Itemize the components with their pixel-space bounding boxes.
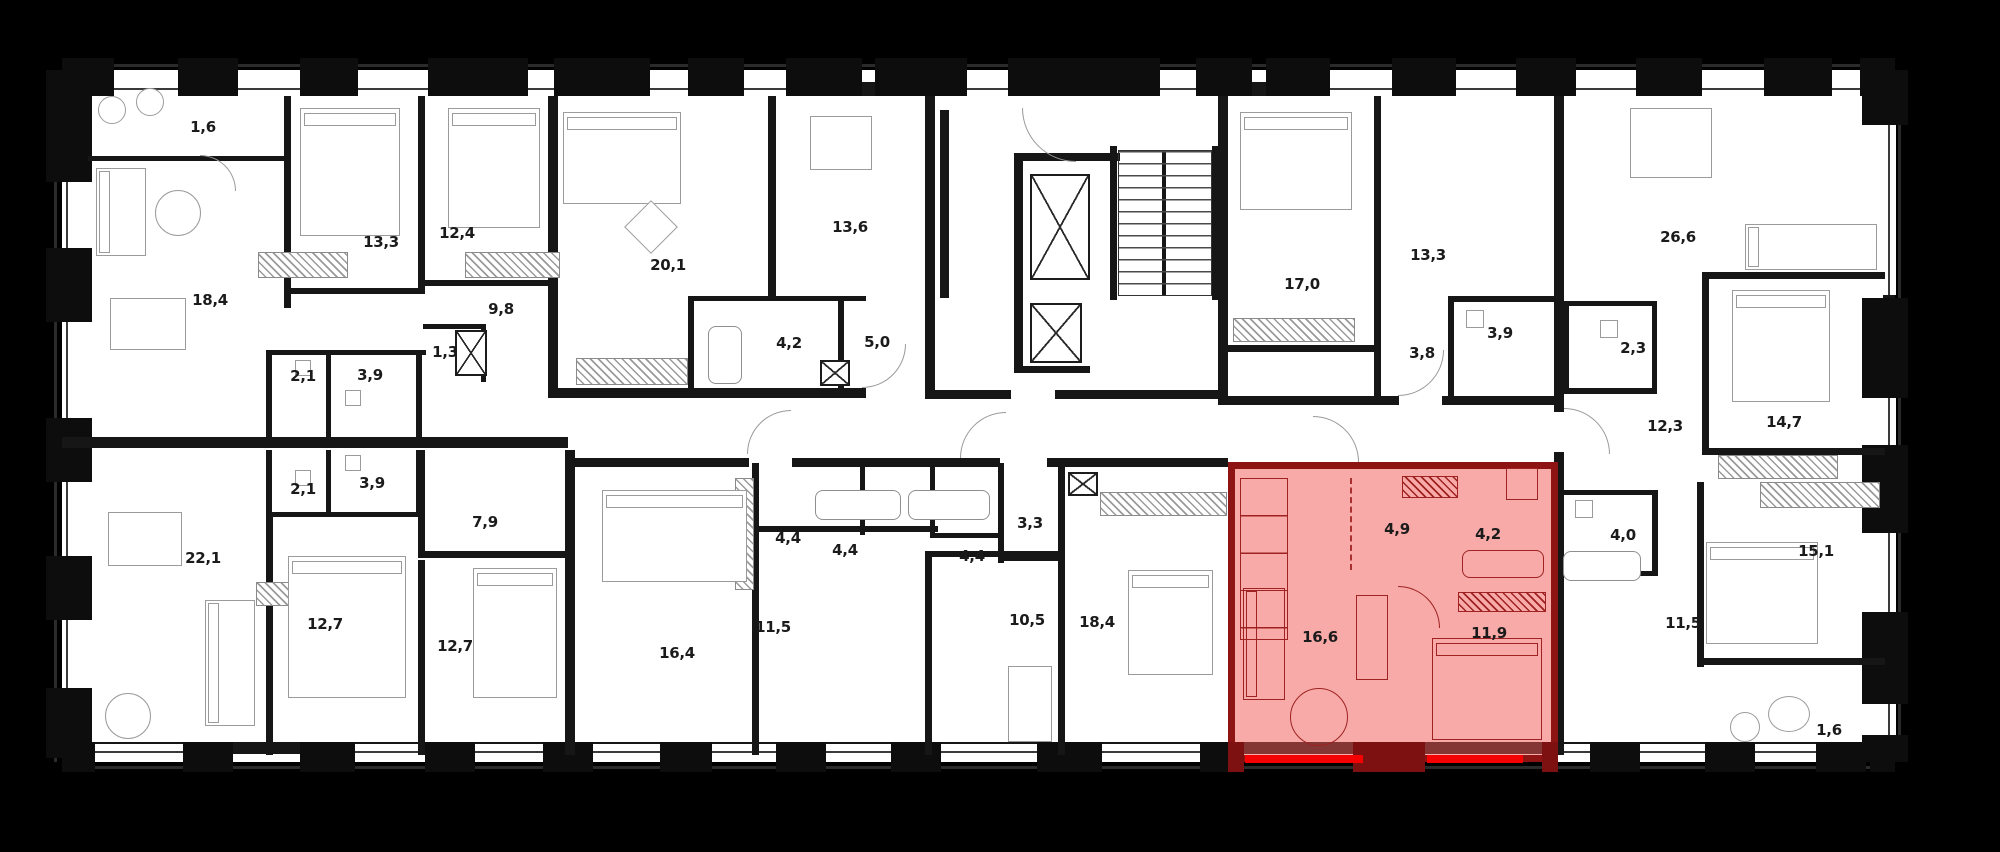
window-line bbox=[475, 751, 543, 753]
wardrobe bbox=[1458, 592, 1546, 612]
bed bbox=[602, 490, 747, 582]
window-line bbox=[967, 88, 1008, 90]
wall bbox=[548, 388, 866, 398]
window-line bbox=[1832, 88, 1860, 90]
room-area-label: 13,3 bbox=[363, 233, 399, 251]
wall bbox=[266, 350, 426, 355]
room-area-label: 5,0 bbox=[864, 333, 890, 351]
room-area-label: 7,9 bbox=[472, 513, 498, 531]
table bbox=[1290, 688, 1348, 746]
room-area-label: 11,5 bbox=[1665, 614, 1701, 632]
bed bbox=[1732, 290, 1830, 402]
wall bbox=[1218, 96, 1228, 405]
bed bbox=[288, 556, 406, 698]
room-area-label: 15,1 bbox=[1798, 542, 1834, 560]
window-pier bbox=[46, 248, 92, 322]
sanitary-fixture bbox=[345, 390, 361, 406]
wall bbox=[1227, 396, 1399, 405]
window-opening bbox=[1832, 80, 1860, 100]
window-opening bbox=[1576, 80, 1636, 100]
wall bbox=[925, 390, 1011, 399]
wardrobe bbox=[258, 252, 348, 278]
room-area-label: 26,6 bbox=[1660, 228, 1696, 246]
window-line bbox=[1888, 704, 1890, 735]
window-pier bbox=[425, 742, 475, 772]
bathtub bbox=[1462, 550, 1544, 578]
window-pier bbox=[1862, 298, 1908, 398]
sofa bbox=[1243, 588, 1285, 700]
wall bbox=[418, 450, 425, 556]
room-area-label-highlighted: 4,9 bbox=[1384, 520, 1410, 538]
window-line bbox=[358, 88, 428, 90]
window-pier bbox=[1516, 58, 1576, 96]
bathtub bbox=[908, 490, 990, 520]
wall bbox=[688, 298, 694, 390]
room-area-label: 20,1 bbox=[650, 256, 686, 274]
bathtub bbox=[815, 490, 901, 520]
wall bbox=[266, 352, 272, 437]
bed bbox=[1240, 112, 1352, 210]
wall bbox=[1564, 388, 1657, 394]
window-pier bbox=[875, 58, 967, 96]
shaft-icon bbox=[455, 330, 487, 376]
room-area-label: 3,9 bbox=[357, 366, 383, 384]
window-line bbox=[66, 482, 68, 556]
window-line bbox=[650, 88, 688, 90]
window-pier bbox=[1266, 58, 1330, 96]
wall bbox=[1652, 490, 1658, 576]
staircase-icon bbox=[1118, 150, 1212, 296]
wall bbox=[425, 280, 557, 286]
chair-round bbox=[1730, 712, 1760, 742]
room-area-label: 18,4 bbox=[192, 291, 228, 309]
window-opening bbox=[62, 482, 76, 556]
room-area-label: 4,0 bbox=[1610, 526, 1636, 544]
sofa bbox=[96, 168, 146, 256]
window-pier bbox=[46, 70, 92, 182]
room-area-label: 2,1 bbox=[290, 480, 316, 498]
window-line bbox=[66, 620, 68, 688]
window-pier bbox=[300, 58, 358, 96]
window-line bbox=[1330, 88, 1392, 90]
room-area-label: 12,4 bbox=[439, 224, 475, 242]
window-pier bbox=[554, 58, 650, 96]
window-line bbox=[744, 88, 786, 90]
window-line bbox=[1160, 88, 1196, 90]
wall bbox=[1448, 296, 1454, 398]
window-pier bbox=[1196, 58, 1252, 96]
apartment-wall bbox=[0, 0, 7, 219]
window-opening bbox=[1330, 80, 1392, 100]
bed bbox=[563, 112, 681, 204]
room-area-label: 4,4 bbox=[832, 541, 858, 559]
wall bbox=[326, 450, 331, 516]
wall bbox=[565, 450, 575, 755]
wall bbox=[266, 517, 273, 755]
wall bbox=[418, 560, 425, 755]
room-area-label: 17,0 bbox=[1284, 275, 1320, 293]
window-pier bbox=[46, 556, 92, 620]
window-line bbox=[66, 182, 68, 248]
shaft-icon bbox=[1068, 472, 1098, 496]
wall bbox=[1564, 301, 1569, 393]
window-opening bbox=[62, 182, 76, 248]
window-pier bbox=[1008, 58, 1160, 96]
wardrobe bbox=[1233, 318, 1355, 342]
wall bbox=[1047, 458, 1228, 467]
window-line bbox=[95, 751, 183, 753]
window-pier bbox=[183, 742, 233, 772]
window-line bbox=[528, 88, 554, 90]
window-opening bbox=[744, 80, 786, 100]
bed bbox=[448, 108, 540, 228]
sofa bbox=[1745, 224, 1877, 270]
wardrobe bbox=[1402, 476, 1458, 498]
window-line bbox=[1640, 751, 1705, 753]
window-line bbox=[1888, 398, 1890, 445]
bed bbox=[1432, 638, 1542, 740]
table bbox=[810, 116, 872, 170]
room-area-label: 13,6 bbox=[832, 218, 868, 236]
window-pier bbox=[688, 58, 744, 96]
room-area-label: 12,7 bbox=[307, 615, 343, 633]
wall bbox=[326, 352, 331, 437]
window-pier bbox=[1862, 70, 1908, 125]
room-area-label: 1,6 bbox=[1816, 721, 1842, 739]
room-area-label: 11,5 bbox=[755, 618, 791, 636]
room-area-label: 16,4 bbox=[659, 644, 695, 662]
room-area-label-highlighted: 4,2 bbox=[1475, 525, 1501, 543]
chair-round bbox=[136, 88, 164, 116]
wall bbox=[266, 450, 272, 516]
sanitary-fixture bbox=[1600, 320, 1618, 338]
chair-round bbox=[1768, 696, 1810, 732]
highlight-underline bbox=[1245, 755, 1363, 763]
window-pier bbox=[1353, 742, 1425, 772]
elevator-shaft-icon bbox=[1030, 174, 1090, 280]
room-area-label: 10,5 bbox=[1009, 611, 1045, 629]
room-area-label: 12,7 bbox=[437, 637, 473, 655]
window-pier bbox=[1816, 742, 1866, 772]
wall bbox=[423, 324, 485, 329]
window-line bbox=[1576, 88, 1636, 90]
window-line bbox=[712, 751, 776, 753]
window-opening bbox=[1160, 80, 1196, 100]
wall bbox=[1014, 153, 1023, 368]
wall bbox=[1702, 448, 1885, 455]
chair-round bbox=[155, 190, 201, 236]
wardrobe bbox=[465, 252, 560, 278]
wall bbox=[1227, 345, 1380, 352]
shaft-icon bbox=[820, 360, 850, 386]
window-line bbox=[1888, 533, 1890, 612]
room-area-label: 2,3 bbox=[1620, 339, 1646, 357]
room-area-label: 9,8 bbox=[488, 300, 514, 318]
window-pier bbox=[1590, 742, 1640, 772]
wall bbox=[925, 551, 1065, 557]
window-pier bbox=[1542, 742, 1558, 772]
wall bbox=[1652, 301, 1657, 393]
room-area-label: 1,6 bbox=[190, 118, 216, 136]
chair-round bbox=[105, 693, 151, 739]
chair-round bbox=[98, 96, 126, 124]
window-opening bbox=[967, 80, 1008, 100]
highlight-underline bbox=[1427, 755, 1523, 763]
wall bbox=[1374, 96, 1381, 348]
wall bbox=[62, 437, 568, 448]
room-area-label: 3,9 bbox=[1487, 324, 1513, 342]
room-area-label: 18,4 bbox=[1079, 613, 1115, 631]
window-line bbox=[238, 88, 300, 90]
apartment-wall bbox=[0, 219, 7, 345]
window-pier bbox=[1764, 58, 1832, 96]
wall bbox=[930, 533, 1003, 538]
table bbox=[108, 512, 182, 566]
window-line bbox=[1456, 88, 1516, 90]
wall bbox=[1448, 296, 1560, 302]
wall bbox=[1697, 482, 1704, 667]
window-line bbox=[1888, 125, 1890, 295]
wardrobe bbox=[1718, 455, 1838, 479]
window-pier bbox=[776, 742, 826, 772]
room-area-label-highlighted: 16,6 bbox=[1302, 628, 1338, 646]
room-area-label: 12,3 bbox=[1647, 417, 1683, 435]
wardrobe bbox=[576, 358, 688, 385]
sanitary-fixture bbox=[1575, 500, 1593, 518]
zoning-dashed-line bbox=[1350, 478, 1352, 570]
window-pier bbox=[786, 58, 862, 96]
window-line bbox=[826, 751, 891, 753]
wardrobe bbox=[1100, 492, 1227, 516]
window-pier bbox=[1200, 742, 1228, 772]
room-area-label: 14,7 bbox=[1766, 413, 1802, 431]
window-line bbox=[355, 751, 425, 753]
wall bbox=[1374, 330, 1381, 400]
window-pier bbox=[1636, 58, 1702, 96]
window-opening bbox=[62, 322, 76, 418]
bed bbox=[1128, 570, 1213, 675]
wall bbox=[925, 553, 932, 755]
window-pier bbox=[1705, 742, 1755, 772]
room-area-label: 3,8 bbox=[1409, 344, 1435, 362]
window-line bbox=[941, 751, 1037, 753]
window-opening bbox=[1456, 80, 1516, 100]
window-pier bbox=[1392, 58, 1456, 96]
wall bbox=[998, 463, 1004, 563]
table bbox=[1630, 108, 1712, 178]
wall bbox=[416, 352, 422, 437]
bed bbox=[473, 568, 557, 698]
wall bbox=[1554, 96, 1564, 405]
wall bbox=[768, 96, 776, 300]
bathtub bbox=[708, 326, 742, 384]
desk bbox=[1356, 595, 1388, 680]
window-line bbox=[1702, 88, 1764, 90]
room-area-label-highlighted: 11,9 bbox=[1471, 624, 1507, 642]
wall bbox=[1564, 301, 1656, 306]
wall bbox=[792, 458, 1000, 467]
window-opening bbox=[1702, 80, 1764, 100]
window-opening bbox=[62, 620, 76, 688]
room-area-label: 4,2 bbox=[776, 334, 802, 352]
wall bbox=[575, 458, 749, 467]
wall bbox=[88, 156, 286, 161]
wall bbox=[1055, 390, 1228, 399]
window-pier bbox=[46, 688, 92, 758]
wall bbox=[1554, 396, 1564, 412]
room-area-label: 4,4 bbox=[959, 547, 985, 565]
wall bbox=[1014, 366, 1090, 373]
washer bbox=[1506, 468, 1538, 500]
room-area-label: 2,1 bbox=[290, 367, 316, 385]
sanitary-fixture bbox=[1466, 310, 1484, 328]
bed bbox=[300, 108, 400, 236]
wall bbox=[1702, 272, 1709, 455]
wall bbox=[940, 110, 949, 298]
wall bbox=[1110, 146, 1117, 300]
wall bbox=[1702, 272, 1885, 279]
window-line bbox=[593, 751, 660, 753]
building-outline: 1,613,312,418,49,81,32,13,920,113,64,25,… bbox=[0, 0, 2000, 852]
sofa bbox=[205, 600, 255, 726]
room-area-label: 22,1 bbox=[185, 549, 221, 567]
room-area-label: 13,3 bbox=[1410, 246, 1446, 264]
room-area-label: 4,4 bbox=[775, 529, 801, 547]
table bbox=[110, 298, 186, 350]
window-line bbox=[66, 322, 68, 418]
sanitary-fixture bbox=[345, 455, 361, 471]
wall bbox=[418, 96, 425, 288]
floor-plan: 1,613,312,418,49,81,32,13,920,113,64,25,… bbox=[0, 0, 2000, 852]
room-area-label: 3,9 bbox=[359, 474, 385, 492]
room-area-label: 3,3 bbox=[1017, 514, 1043, 532]
wall bbox=[1442, 396, 1564, 405]
wall bbox=[1058, 463, 1065, 755]
window-line bbox=[1755, 751, 1816, 753]
wall bbox=[266, 512, 423, 517]
window-line bbox=[1102, 751, 1200, 753]
window-pier bbox=[178, 58, 238, 96]
window-pier bbox=[1862, 735, 1908, 762]
wall bbox=[1554, 490, 1658, 495]
wall bbox=[925, 96, 935, 398]
window-pier bbox=[891, 742, 941, 772]
window-pier bbox=[1037, 742, 1102, 772]
window-pier bbox=[300, 742, 355, 772]
elevator-shaft-icon bbox=[1030, 303, 1082, 363]
window-pier bbox=[46, 418, 92, 482]
bathtub bbox=[1563, 551, 1641, 581]
wall bbox=[418, 551, 568, 558]
window-pier bbox=[1228, 742, 1244, 772]
window-opening bbox=[650, 80, 688, 100]
wall bbox=[284, 288, 425, 294]
window-pier bbox=[428, 58, 528, 96]
wall bbox=[548, 96, 558, 398]
table bbox=[1008, 666, 1052, 742]
window-pier bbox=[660, 742, 712, 772]
wall bbox=[1702, 658, 1885, 665]
room-area-label: 1,3 bbox=[432, 343, 458, 361]
wardrobe bbox=[1760, 482, 1880, 508]
